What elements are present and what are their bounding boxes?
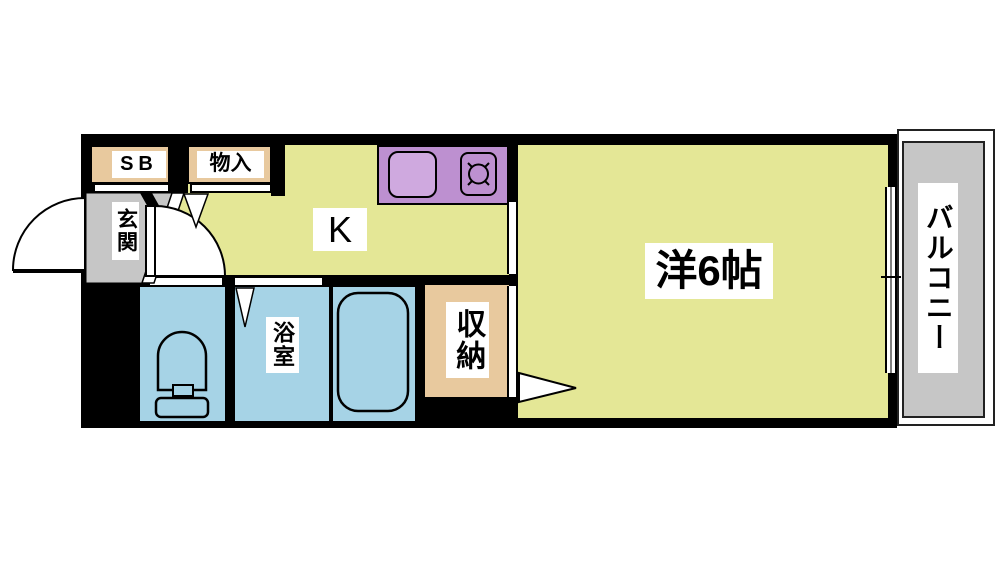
western-room-label-text: 洋6帖 [655,249,762,293]
storage-top-label-text: 物入 [210,153,252,175]
shoe-box-label: SB [112,151,166,178]
bathtub-icon [338,293,408,411]
entrance-label: 玄関 [112,202,139,260]
interior-door-swing-icon [146,206,225,276]
balcony-label: バルコニー [918,183,958,373]
stove-burner-icon [468,163,489,185]
storage-top-label: 物入 [197,151,264,178]
kitchen-label: K [313,208,367,251]
closet-label: 収納 [446,302,489,378]
western-room-label: 洋6帖 [645,243,773,299]
entrance-door-swing-icon [13,198,85,272]
balcony-label-text: バルコニー [923,203,952,353]
plan-symbols [0,0,1000,562]
bathroom-label-text: 浴室 [271,321,294,369]
kitchen-label-text: K [328,211,352,249]
closet-label-text: 収納 [452,308,484,372]
entrance-label-text: 玄関 [114,208,136,254]
bathroom-door-triangle-icon [236,288,254,327]
closet-door-triangle-icon [519,373,576,402]
shoe-box-label-text: SB [120,154,158,175]
bathroom-label: 浴室 [266,317,299,373]
floor-plan: SB 物入 玄関 K 洋6帖 浴室 収納 バルコニー [0,0,1000,562]
toilet-icon [156,332,208,417]
window-marks [881,187,901,373]
